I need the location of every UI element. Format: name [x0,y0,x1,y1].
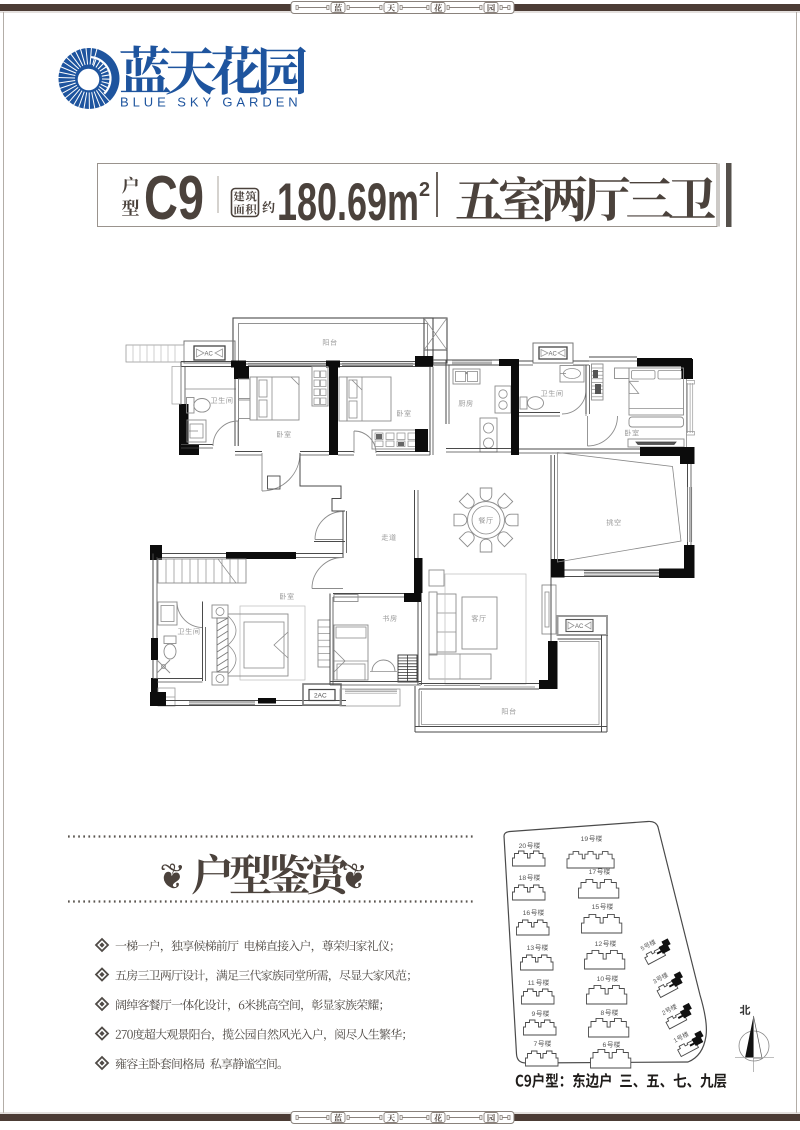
svg-text:3: 3 [652,978,659,986]
svg-text:2: 2 [661,1009,668,1017]
svg-text:180.69m: 180.69m [277,173,419,232]
svg-text:C9: C9 [144,164,204,233]
svg-text:BLUE SKY GARDEN: BLUE SKY GARDEN [120,95,303,110]
svg-text:16: 16 [523,910,531,917]
svg-text:18: 18 [519,875,527,882]
svg-text:19: 19 [581,836,589,843]
svg-text:5: 5 [640,945,647,953]
svg-text:11: 11 [528,980,535,987]
svg-text:15: 15 [592,904,600,911]
svg-text:AC: AC [205,352,214,358]
svg-text:AC: AC [549,352,558,358]
svg-text:12: 12 [595,941,603,948]
svg-text:7: 7 [534,1041,538,1048]
svg-text:17: 17 [589,869,597,876]
svg-text:8: 8 [601,1010,605,1017]
svg-text:13: 13 [527,945,535,952]
svg-text:2AC: 2AC [314,693,327,700]
svg-text:1: 1 [673,1037,680,1045]
svg-text:9: 9 [532,1011,536,1018]
svg-text:20: 20 [519,843,527,850]
svg-text:AC: AC [575,624,584,630]
svg-text:2: 2 [419,179,430,201]
svg-text:10: 10 [597,976,605,983]
svg-text:6: 6 [603,1042,607,1049]
